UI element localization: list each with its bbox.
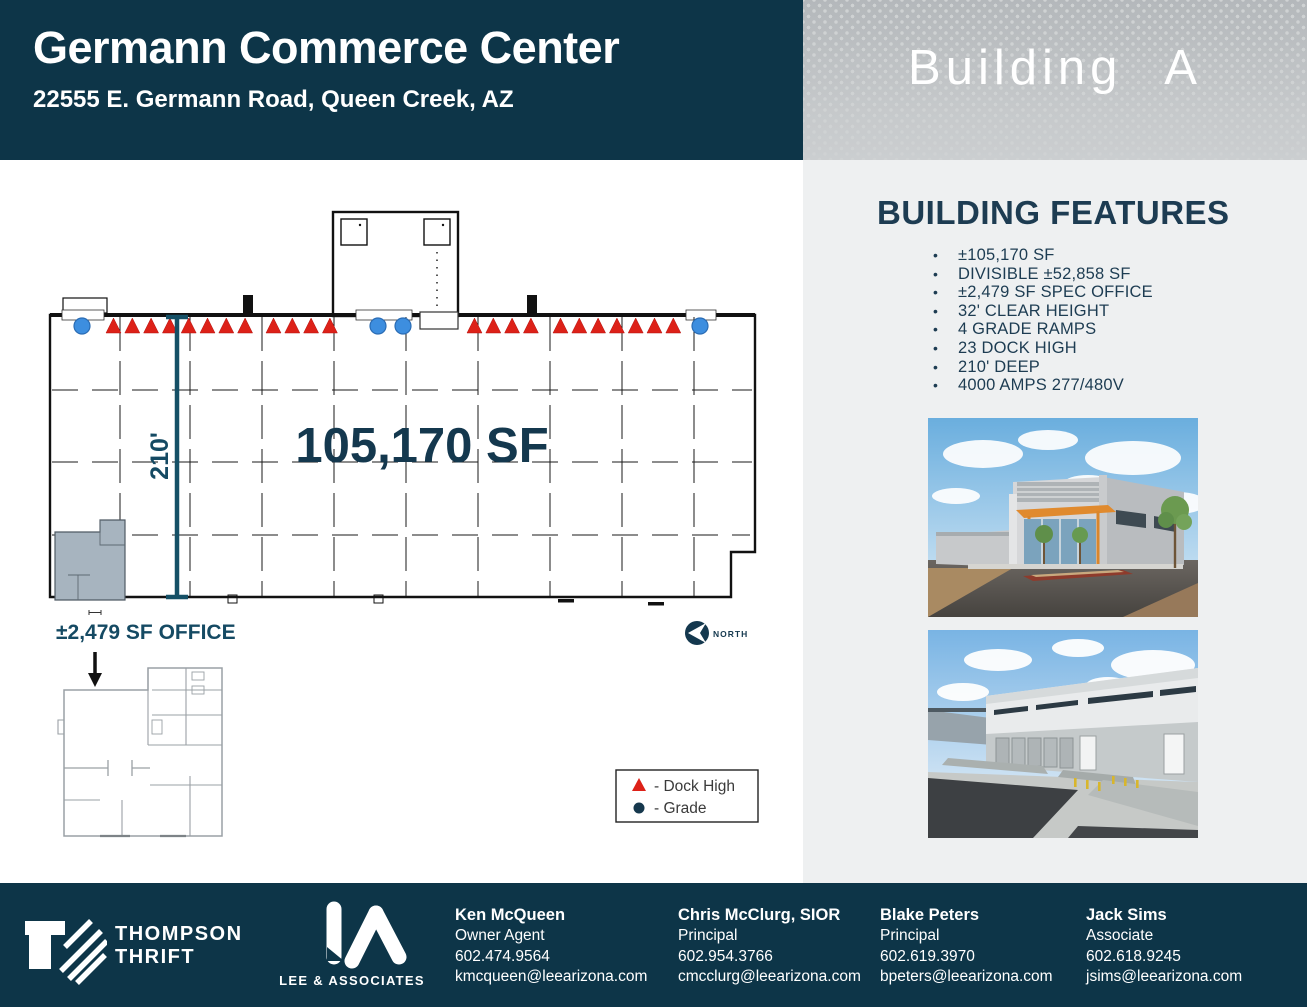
- contact-card: Ken McQueen Owner Agent 602.474.9564 kmc…: [455, 905, 647, 988]
- brand-line: THOMPSON: [115, 923, 243, 946]
- dock-high-marker: [238, 318, 253, 333]
- dock-high-marker: [572, 318, 587, 333]
- contact-name: Chris McClurg, SIOR: [678, 905, 861, 926]
- grade-marker: [395, 318, 411, 334]
- grade-marker: [74, 318, 90, 334]
- dock-high-marker: [181, 318, 196, 333]
- office-callout-arrow: [88, 652, 102, 687]
- plan-legend: - Dock High - Grade: [616, 770, 758, 822]
- flyer-page: Germann Commerce Center 22555 E. Germann…: [0, 0, 1307, 1007]
- contact-email[interactable]: jsims@leearizona.com: [1086, 967, 1242, 988]
- contact-title: Associate: [1086, 926, 1242, 947]
- office-detail-plan: [58, 668, 222, 836]
- photo-building-exterior: [928, 418, 1198, 617]
- contact-phone: 602.954.3766: [678, 947, 861, 968]
- lee-associates-wordmark: LEE & ASSOCIATES: [272, 973, 432, 988]
- grade-marker: [370, 318, 386, 334]
- contact-title: Owner Agent: [455, 926, 647, 947]
- contact-email[interactable]: bpeters@leearizona.com: [880, 967, 1053, 988]
- dock-high-marker: [505, 318, 520, 333]
- feature-item: 23 DOCK HIGH: [931, 339, 1153, 358]
- area-size-label: 105,170 SF: [295, 419, 548, 473]
- photo-building-exterior-art: [928, 418, 1198, 617]
- legend-dock-label: - Dock High: [654, 778, 735, 795]
- floor-plan-drawing: 210' 105,170 SF ±2,479 SF OFFICE: [0, 160, 803, 883]
- dock-high-marker: [666, 318, 681, 333]
- feature-item: 4 GRADE RAMPS: [931, 320, 1153, 339]
- thompson-thrift-logo-icon: [25, 913, 107, 985]
- contact-phone: 602.618.9245: [1086, 947, 1242, 968]
- header-banner: Germann Commerce Center 22555 E. Germann…: [0, 0, 803, 160]
- dock-high-marker: [591, 318, 606, 333]
- page-title: Germann Commerce Center: [33, 22, 619, 74]
- dock-high-marker: [467, 318, 482, 333]
- brand-line: THRIFT: [115, 946, 243, 969]
- feature-item: 4000 AMPS 277/480V: [931, 376, 1153, 395]
- contact-name: Blake Peters: [880, 905, 1053, 926]
- contact-name: Ken McQueen: [455, 905, 647, 926]
- feature-item: ±105,170 SF: [931, 246, 1153, 265]
- dock-high-marker: [486, 318, 501, 333]
- photo-loading-dock: [928, 630, 1198, 838]
- feature-item: DIVISIBLE ±52,858 SF: [931, 265, 1153, 284]
- floor-plan-area: 210' 105,170 SF ±2,479 SF OFFICE: [0, 160, 803, 883]
- dock-high-marker: [200, 318, 215, 333]
- dock-high-marker: [144, 318, 159, 333]
- north-arrow-icon: NORTH: [685, 621, 748, 645]
- dock-high-marker: [219, 318, 234, 333]
- contact-card: Chris McClurg, SIOR Principal 602.954.37…: [678, 905, 861, 988]
- dock-high-marker: [647, 318, 662, 333]
- building-banner: Building A: [803, 0, 1307, 160]
- contact-name: Jack Sims: [1086, 905, 1242, 926]
- contact-phone: 602.619.3970: [880, 947, 1053, 968]
- dock-high-marker: [628, 318, 643, 333]
- features-heading: BUILDING FEATURES: [877, 194, 1230, 232]
- legend-grade-label: - Grade: [654, 800, 707, 817]
- office-footprint: [55, 520, 125, 615]
- legend-grade-icon: [634, 803, 645, 814]
- property-address: 22555 E. Germann Road, Queen Creek, AZ: [33, 86, 514, 114]
- dock-high-marker: [106, 318, 121, 333]
- feature-item: 210' DEEP: [931, 358, 1153, 377]
- feature-item: ±2,479 SF SPEC OFFICE: [931, 283, 1153, 302]
- contact-email[interactable]: kmcqueen@leearizona.com: [455, 967, 647, 988]
- contact-card: Blake Peters Principal 602.619.3970 bpet…: [880, 905, 1053, 988]
- feature-item: 32' CLEAR HEIGHT: [931, 302, 1153, 321]
- contact-title: Principal: [880, 926, 1053, 947]
- contact-email[interactable]: cmcclurg@leearizona.com: [678, 967, 861, 988]
- features-list: ±105,170 SF DIVISIBLE ±52,858 SF ±2,479 …: [931, 246, 1153, 395]
- roof-structure: [333, 212, 458, 316]
- grade-marker: [692, 318, 708, 334]
- depth-dimension-label: 210': [146, 432, 174, 480]
- photo-loading-dock-art: [928, 630, 1198, 838]
- thompson-thrift-wordmark: THOMPSON THRIFT: [115, 923, 243, 969]
- depth-dimension: 210': [146, 317, 188, 597]
- dock-high-marker: [523, 318, 538, 333]
- footer-banner: THOMPSON THRIFT LEE & ASSOCIATES Ken McQ…: [0, 883, 1307, 1007]
- dock-high-marker: [553, 318, 568, 333]
- features-panel: BUILDING FEATURES ±105,170 SF DIVISIBLE …: [803, 160, 1307, 883]
- contact-title: Principal: [678, 926, 861, 947]
- office-size-label: ±2,479 SF OFFICE: [56, 621, 236, 644]
- lee-associates-logo-icon: [300, 899, 410, 969]
- dock-high-marker: [266, 318, 281, 333]
- contact-phone: 602.474.9564: [455, 947, 647, 968]
- dock-high-marker: [304, 318, 319, 333]
- dock-high-marker: [285, 318, 300, 333]
- dock-high-marker: [125, 318, 140, 333]
- contact-card: Jack Sims Associate 602.618.9245 jsims@l…: [1086, 905, 1242, 988]
- north-label: NORTH: [713, 629, 748, 639]
- dock-high-marker: [322, 318, 337, 333]
- building-name: Building A: [803, 40, 1307, 96]
